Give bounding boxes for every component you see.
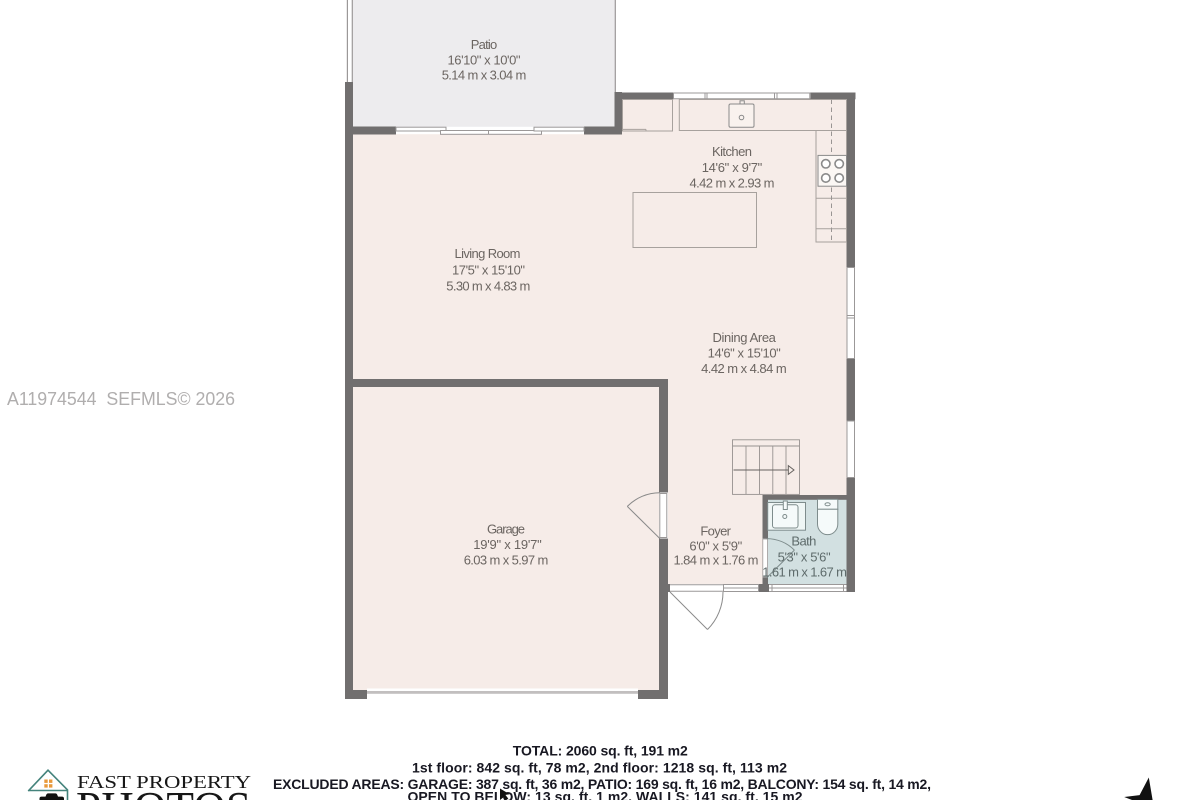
svg-text:TOTAL: 2060 sq. ft, 191 m2: TOTAL: 2060 sq. ft, 191 m2 [513,742,688,758]
svg-text:6.03 m x 5.97 m: 6.03 m x 5.97 m [464,553,549,568]
svg-text:Garage: Garage [487,522,525,537]
svg-text:14'6" x 9'7": 14'6" x 9'7" [702,160,763,175]
svg-text:Foyer: Foyer [700,523,731,538]
svg-text:Living Room: Living Room [455,246,521,261]
svg-text:19'9" x 19'7": 19'9" x 19'7" [473,537,542,552]
svg-text:1.84 m x 1.76 m: 1.84 m x 1.76 m [674,552,759,567]
svg-text:Dining Area: Dining Area [713,330,777,345]
svg-text:5.14 m x 3.04 m: 5.14 m x 3.04 m [442,68,527,83]
svg-text:14'6" x 15'10": 14'6" x 15'10" [708,346,781,361]
svg-text:PHOTOS: PHOTOS [76,783,251,800]
svg-text:Patio: Patio [471,37,498,52]
svg-text:4.42 m x 2.93 m: 4.42 m x 2.93 m [690,175,775,190]
svg-text:OPEN TO BELOW: 13 sq. ft, 1 m2: OPEN TO BELOW: 13 sq. ft, 1 m2, WALLS: 1… [408,789,803,800]
svg-text:16'10" x 10'0": 16'10" x 10'0" [448,53,521,68]
svg-text:Bath: Bath [791,534,816,549]
svg-text:17'5" x 15'10": 17'5" x 15'10" [452,262,525,277]
svg-text:5.30 m x 4.83 m: 5.30 m x 4.83 m [446,278,530,293]
svg-text:1st floor: 842 sq. ft, 78 m2,: 1st floor: 842 sq. ft, 78 m2, 2nd floor:… [412,760,787,776]
svg-text:4.42 m x 4.84 m: 4.42 m x 4.84 m [701,361,787,376]
svg-text:5'3" x 5'6": 5'3" x 5'6" [778,550,831,565]
svg-text:1.61 m x 1.67 m: 1.61 m x 1.67 m [762,565,847,580]
svg-text:A11974544 SEFMLS© 2026: A11974544 SEFMLS© 2026 [7,388,235,409]
svg-text:Kitchen: Kitchen [712,144,752,159]
